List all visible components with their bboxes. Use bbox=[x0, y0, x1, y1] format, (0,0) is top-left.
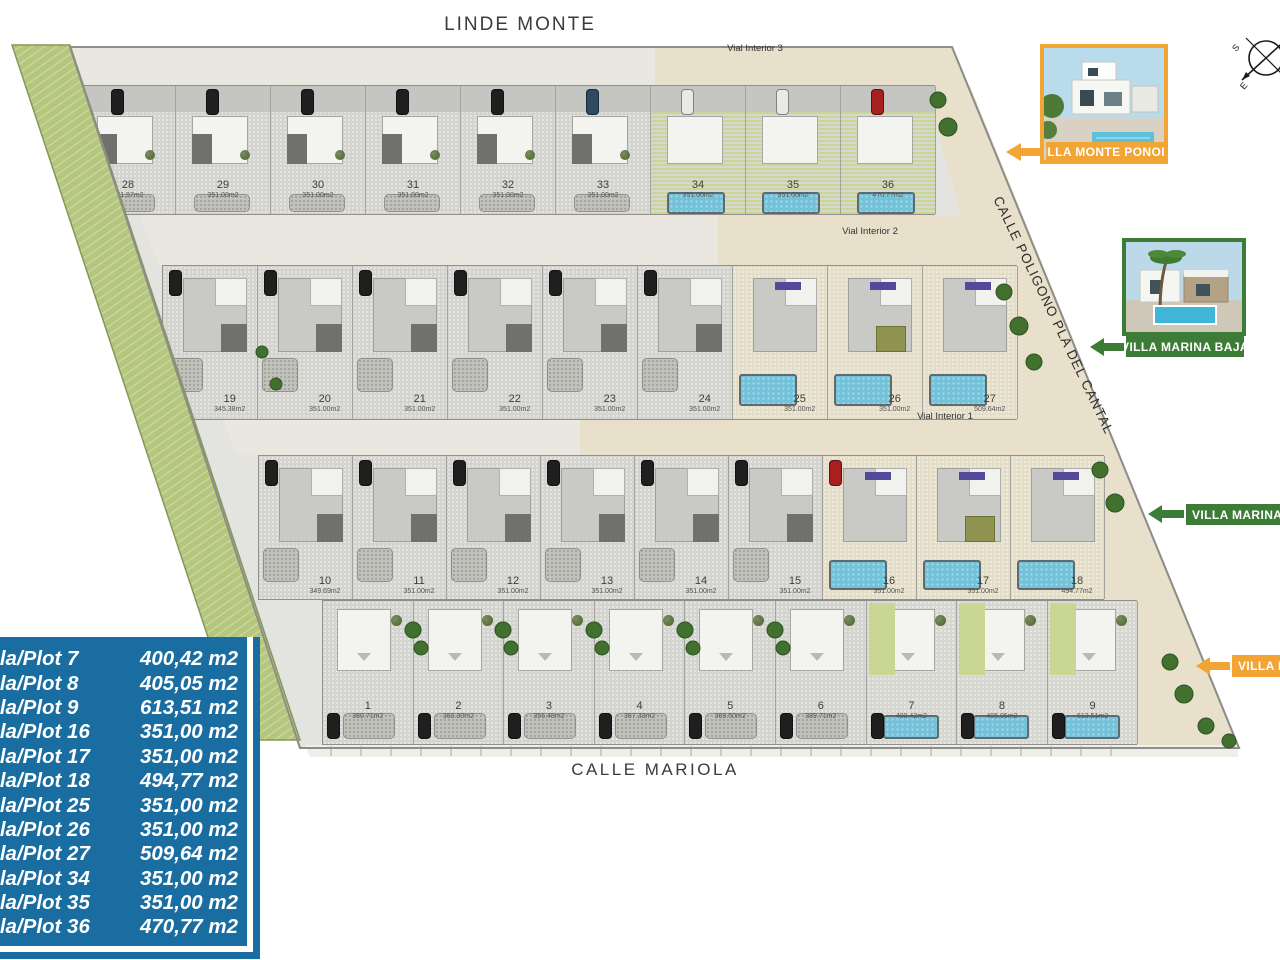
bush-icon bbox=[1116, 615, 1127, 626]
car-icon bbox=[206, 89, 219, 115]
plot-area: 494.77m2 bbox=[1050, 588, 1104, 595]
plot-area: 351.00m2 bbox=[651, 192, 745, 199]
plot-24: 24351.00m2 bbox=[638, 266, 733, 419]
street-label-calle-mariola: CALLE MARIOLA bbox=[555, 760, 755, 780]
pad-shape bbox=[452, 358, 488, 392]
drive-shape bbox=[461, 86, 556, 112]
plot-number-block: 15351.00m2 bbox=[768, 576, 822, 595]
car-icon bbox=[396, 89, 409, 115]
plot-number: 21 bbox=[392, 394, 447, 405]
pad-shape bbox=[262, 358, 298, 392]
plot-18: 18494.77m2 bbox=[1011, 456, 1105, 599]
roof-mark-icon bbox=[1082, 653, 1096, 661]
plot-number: 16 bbox=[862, 576, 916, 587]
legend-row: Parcela/Plot 8405,05 m2 bbox=[0, 671, 247, 695]
bush-icon bbox=[844, 615, 855, 626]
bush-icon bbox=[335, 150, 345, 160]
plot-area: 351.00m2 bbox=[392, 406, 447, 413]
roof-mark-icon bbox=[719, 653, 733, 661]
villa-monte-ponoig-side-label: VILLA MONTE PONOIG bbox=[1232, 655, 1280, 677]
house-shape bbox=[428, 609, 482, 671]
plot-area: 351.00m2 bbox=[674, 588, 728, 595]
plot-6: 6389.71m2 bbox=[776, 601, 867, 744]
plot-area-legend: Parcela/Plot 7400,42 m2Parcela/Plot 8405… bbox=[0, 637, 260, 959]
patch-shape bbox=[287, 134, 307, 164]
plot-area: 351.00m2 bbox=[297, 406, 352, 413]
plot-number: 27 bbox=[962, 394, 1017, 405]
plot-area: 351.00m2 bbox=[768, 588, 822, 595]
patch-shape bbox=[317, 514, 343, 542]
plot-area: 351.00m2 bbox=[556, 192, 650, 199]
plot-number: 23 bbox=[582, 394, 637, 405]
bush-icon bbox=[240, 150, 250, 160]
house-shape bbox=[609, 609, 663, 671]
plot-19: 19345.38m2 bbox=[163, 266, 258, 419]
pergola-icon bbox=[870, 282, 896, 290]
bush-icon bbox=[430, 150, 440, 160]
legend-row: Parcela/Plot 16351,00 m2 bbox=[0, 720, 247, 744]
roof-mark-icon bbox=[629, 653, 643, 661]
bush-icon bbox=[935, 615, 946, 626]
legend-plot-area: 470,77 m2 bbox=[140, 915, 247, 939]
legend-row: Parcela/Plot 17351,00 m2 bbox=[0, 745, 247, 769]
pergola-icon bbox=[865, 472, 891, 480]
plot-number: 3 bbox=[504, 701, 594, 712]
plot-number-block: 30351.00m2 bbox=[271, 180, 365, 199]
plot-number-block: 17351.00m2 bbox=[956, 576, 1010, 595]
plot-number: 24 bbox=[677, 394, 732, 405]
drive-shape bbox=[651, 86, 746, 112]
plot-11: 11351.00m2 bbox=[353, 456, 447, 599]
legend-row: Parcela/Plot 35351,00 m2 bbox=[0, 891, 247, 915]
villa-monte-ponoig-label: VILLA MONTE PONOIG bbox=[1046, 142, 1164, 162]
car-icon bbox=[549, 270, 562, 296]
compass-rose: S E bbox=[1232, 26, 1280, 102]
plot-number: 25 bbox=[772, 394, 827, 405]
bush-icon bbox=[620, 150, 630, 160]
drive-shape bbox=[746, 86, 841, 112]
car-icon bbox=[359, 460, 372, 486]
legend-plot-label: Parcela/Plot 36 bbox=[0, 915, 140, 939]
sub-shape bbox=[405, 278, 437, 306]
arrow-left-orange-icon bbox=[1196, 657, 1230, 675]
plot-number: 8 bbox=[957, 701, 1047, 712]
bush-icon bbox=[1025, 615, 1036, 626]
plot-area: 351.00m2 bbox=[392, 588, 446, 595]
drive-shape bbox=[81, 86, 176, 112]
plot-area: 360.71m2 bbox=[323, 713, 413, 720]
car-icon bbox=[829, 460, 842, 486]
car-icon bbox=[644, 270, 657, 296]
row-1-9: 1360.71m22360.30m23356.48m24367.33m25369… bbox=[322, 600, 1137, 745]
pergola-icon bbox=[965, 282, 991, 290]
sub-shape bbox=[215, 278, 247, 306]
legend-plot-area: 405,05 m2 bbox=[140, 672, 247, 696]
plot-number-block: 4367.33m2 bbox=[595, 701, 685, 720]
plot-number-block: 16351.00m2 bbox=[862, 576, 916, 595]
plot-area: 470.77m2 bbox=[841, 192, 935, 199]
plot-area: 351.00m2 bbox=[580, 588, 634, 595]
car-icon bbox=[265, 460, 278, 486]
plot-area: 371.97m2 bbox=[81, 192, 175, 199]
plot-21: 21351.00m2 bbox=[353, 266, 448, 419]
drive-shape bbox=[366, 86, 461, 112]
plot-number-block: 5369.50m2 bbox=[685, 701, 775, 720]
house-shape bbox=[790, 609, 844, 671]
sub-shape bbox=[310, 278, 342, 306]
pad-shape bbox=[642, 358, 678, 392]
arrow-left-green-icon bbox=[1090, 338, 1124, 356]
patch-shape bbox=[316, 324, 342, 352]
bush-icon bbox=[391, 615, 402, 626]
legend-plot-area: 613,51 m2 bbox=[140, 696, 247, 720]
plot-22: 22351.00m2 bbox=[448, 266, 543, 419]
row-10-18: 10349.69m211351.00m212351.00m213351.00m2… bbox=[258, 455, 1104, 600]
plot-35: 35351.00m2 bbox=[746, 86, 841, 214]
plot-number-block: 10349.69m2 bbox=[298, 576, 352, 595]
plot-area: 351.00m2 bbox=[176, 192, 270, 199]
bush-icon bbox=[525, 150, 535, 160]
plot-17: 17351.00m2 bbox=[917, 456, 1011, 599]
legend-plot-label: Parcela/Plot 17 bbox=[0, 745, 140, 769]
plot-number-block: 32351.00m2 bbox=[461, 180, 555, 199]
plot-number: 28 bbox=[81, 180, 175, 191]
patch-shape bbox=[505, 514, 531, 542]
plot-number-block: 23351.00m2 bbox=[582, 394, 637, 413]
roof-mark-icon bbox=[810, 653, 824, 661]
road-label-vial-interior-3: Vial Interior 3 bbox=[700, 43, 810, 54]
house-shape bbox=[762, 116, 818, 164]
legend-row: Parcela/Plot 27509,64 m2 bbox=[0, 842, 247, 866]
legend-plot-area: 509,64 m2 bbox=[140, 842, 247, 866]
plot-area: 389.71m2 bbox=[776, 713, 866, 720]
plot-number: 20 bbox=[297, 394, 352, 405]
lawn-shape bbox=[1050, 603, 1076, 675]
plot-number: 5 bbox=[685, 701, 775, 712]
plot-number: 9 bbox=[1048, 701, 1138, 712]
sub-shape bbox=[405, 468, 437, 496]
patch-shape bbox=[696, 324, 722, 352]
lawn-shape bbox=[869, 603, 895, 675]
plot-number: 33 bbox=[556, 180, 650, 191]
pergola-icon bbox=[959, 472, 985, 480]
plot-number: 34 bbox=[651, 180, 745, 191]
plot-27: 27509.64m2 bbox=[923, 266, 1018, 419]
plot-number: 1 bbox=[323, 701, 413, 712]
plot-number-block: 14351.00m2 bbox=[674, 576, 728, 595]
plot-area: 351.00m2 bbox=[461, 192, 555, 199]
legend-plot-label: Parcela/Plot 7 bbox=[0, 647, 140, 671]
pad-shape bbox=[639, 548, 675, 582]
compass-letter-s: S bbox=[1232, 42, 1242, 53]
plot-number-block: 31351.00m2 bbox=[366, 180, 460, 199]
plot-area: 400.42m2 bbox=[867, 713, 957, 720]
plot-area: 367.33m2 bbox=[595, 713, 685, 720]
plot-25: 25351.00m2 bbox=[733, 266, 828, 419]
car-icon bbox=[735, 460, 748, 486]
plot-area: 351.00m2 bbox=[271, 192, 365, 199]
plot-area: 349.69m2 bbox=[298, 588, 352, 595]
sub-shape bbox=[781, 468, 813, 496]
legend-plot-label: Parcela/Plot 27 bbox=[0, 842, 140, 866]
legend-plot-label: Parcela/Plot 26 bbox=[0, 818, 140, 842]
legend-rows: Parcela/Plot 7400,42 m2Parcela/Plot 8405… bbox=[0, 637, 247, 946]
villa-marina-baja-label: VILLA MARINA BAJA bbox=[1126, 336, 1244, 357]
roof-mark-icon bbox=[357, 653, 371, 661]
car-icon bbox=[169, 270, 182, 296]
plot-number: 35 bbox=[746, 180, 840, 191]
plot-area: 351.00m2 bbox=[772, 406, 827, 413]
compass-letter-e: E bbox=[1238, 80, 1249, 91]
plot-area: 351.00m2 bbox=[366, 192, 460, 199]
plot-area: 351.00m2 bbox=[746, 192, 840, 199]
legend-plot-label: Parcela/Plot 8 bbox=[0, 672, 140, 696]
plot-number-block: 21351.00m2 bbox=[392, 394, 447, 413]
plot-number: 26 bbox=[867, 394, 922, 405]
plot-number: 4 bbox=[595, 701, 685, 712]
plot-number: 6 bbox=[776, 701, 866, 712]
pad-shape bbox=[167, 358, 203, 392]
legend-plot-label: Parcela/Plot 35 bbox=[0, 891, 140, 915]
plot-12: 12351.00m2 bbox=[447, 456, 541, 599]
plot-number: 17 bbox=[956, 576, 1010, 587]
pad-shape bbox=[357, 358, 393, 392]
car-icon bbox=[301, 89, 314, 115]
plot-29: 29351.00m2 bbox=[176, 86, 271, 214]
legend-frame: Parcela/Plot 7400,42 m2Parcela/Plot 8405… bbox=[0, 637, 253, 952]
house-shape bbox=[667, 116, 723, 164]
roof-mark-icon bbox=[901, 653, 915, 661]
pad-shape bbox=[357, 548, 393, 582]
row-19-27: 19345.38m220351.00m221351.00m222351.00m2… bbox=[162, 265, 1017, 420]
patch-shape bbox=[693, 514, 719, 542]
arrow-left-green-icon bbox=[1148, 505, 1184, 523]
plot-number: 14 bbox=[674, 576, 728, 587]
patch-shape bbox=[192, 134, 212, 164]
bush-icon bbox=[482, 615, 493, 626]
legend-plot-label: Parcela/Plot 18 bbox=[0, 769, 140, 793]
row-28-36: 28371.97m229351.00m230351.00m231351.00m2… bbox=[80, 85, 935, 215]
patch-shape bbox=[221, 324, 247, 352]
patch-shape bbox=[382, 134, 402, 164]
car-icon bbox=[681, 89, 694, 115]
legend-plot-area: 400,42 m2 bbox=[140, 647, 247, 671]
car-icon bbox=[871, 89, 884, 115]
legend-plot-label: Parcela/Plot 9 bbox=[0, 696, 140, 720]
house-shape bbox=[518, 609, 572, 671]
plot-number-block: 13351.00m2 bbox=[580, 576, 634, 595]
sub-shape bbox=[595, 278, 627, 306]
patch-shape bbox=[601, 324, 627, 352]
legend-row: Parcela/Plot 26351,00 m2 bbox=[0, 818, 247, 842]
legend-plot-label: Parcela/Plot 16 bbox=[0, 720, 140, 744]
plot-area: 360.30m2 bbox=[414, 713, 504, 720]
house-shape bbox=[337, 609, 391, 671]
pad-shape bbox=[547, 358, 583, 392]
plot-number: 31 bbox=[366, 180, 460, 191]
plot-number: 22 bbox=[487, 394, 542, 405]
legend-row: Parcela/Plot 18494,77 m2 bbox=[0, 769, 247, 793]
plot-area: 356.48m2 bbox=[504, 713, 594, 720]
legend-plot-label: Parcela/Plot 34 bbox=[0, 867, 140, 891]
plot-area: 351.00m2 bbox=[677, 406, 732, 413]
pergola-icon bbox=[775, 282, 801, 290]
plot-number-block: 24351.00m2 bbox=[677, 394, 732, 413]
sub-shape bbox=[500, 278, 532, 306]
plot-number-block: 9613.51m2 bbox=[1048, 701, 1138, 720]
plot-20: 20351.00m2 bbox=[258, 266, 353, 419]
patch-shape bbox=[97, 134, 117, 164]
plot-number: 30 bbox=[271, 180, 365, 191]
street-label-linde-monte: LINDE MONTE bbox=[430, 14, 610, 36]
plot-number: 7 bbox=[867, 701, 957, 712]
plot-15: 15351.00m2 bbox=[729, 456, 823, 599]
plot-number-block: 6389.71m2 bbox=[776, 701, 866, 720]
drive-shape bbox=[176, 86, 271, 112]
plot-number: 18 bbox=[1050, 576, 1104, 587]
plot-number-block: 34351.00m2 bbox=[651, 180, 745, 199]
pad-shape bbox=[451, 548, 487, 582]
bush-icon bbox=[663, 615, 674, 626]
roof-mark-icon bbox=[538, 653, 552, 661]
pad-shape bbox=[733, 548, 769, 582]
site-plan-page: 28371.97m229351.00m230351.00m231351.00m2… bbox=[0, 0, 1280, 960]
plot-36: 36470.77m2 bbox=[841, 86, 936, 214]
drive-shape bbox=[271, 86, 366, 112]
legend-plot-area: 351,00 m2 bbox=[140, 818, 247, 842]
plot-area: 351.00m2 bbox=[582, 406, 637, 413]
legend-plot-area: 351,00 m2 bbox=[140, 867, 247, 891]
car-icon bbox=[547, 460, 560, 486]
plot-number-block: 20351.00m2 bbox=[297, 394, 352, 413]
plot-number-block: 7400.42m2 bbox=[867, 701, 957, 720]
patch-shape bbox=[477, 134, 497, 164]
plot-14: 14351.00m2 bbox=[635, 456, 729, 599]
patch-shape bbox=[411, 514, 437, 542]
roof-mark-icon bbox=[991, 653, 1005, 661]
plot-2: 2360.30m2 bbox=[414, 601, 505, 744]
plot-area: 351.00m2 bbox=[487, 406, 542, 413]
car-icon bbox=[454, 270, 467, 296]
legend-plot-area: 351,00 m2 bbox=[140, 794, 247, 818]
plot-16: 16351.00m2 bbox=[823, 456, 917, 599]
legend-row: Parcela/Plot 9613,51 m2 bbox=[0, 696, 247, 720]
legend-plot-area: 494,77 m2 bbox=[140, 769, 247, 793]
car-icon bbox=[641, 460, 654, 486]
car-icon bbox=[453, 460, 466, 486]
plot-area: 369.50m2 bbox=[685, 713, 775, 720]
plot-13: 13351.00m2 bbox=[541, 456, 635, 599]
plot-area: 351.00m2 bbox=[862, 588, 916, 595]
roof-mark-icon bbox=[448, 653, 462, 661]
legend-row: Parcela/Plot 36470,77 m2 bbox=[0, 915, 247, 939]
sub-shape bbox=[690, 278, 722, 306]
plot-number: 29 bbox=[176, 180, 270, 191]
patch-shape bbox=[411, 324, 437, 352]
plot-10: 10349.69m2 bbox=[259, 456, 353, 599]
legend-row: Parcela/Plot 34351,00 m2 bbox=[0, 867, 247, 891]
car-icon bbox=[776, 89, 789, 115]
legend-row: Parcela/Plot 25351,00 m2 bbox=[0, 793, 247, 817]
plot-number-block: 33351.00m2 bbox=[556, 180, 650, 199]
drive-shape bbox=[841, 86, 936, 112]
plot-26: 26351.00m2 bbox=[828, 266, 923, 419]
car-icon bbox=[264, 270, 277, 296]
plot-number-block: 28371.97m2 bbox=[81, 180, 175, 199]
road-label-vial-interior-2: Vial Interior 2 bbox=[815, 226, 925, 237]
plot-9: 9613.51m2 bbox=[1048, 601, 1139, 744]
plot-number: 2 bbox=[414, 701, 504, 712]
plot-8: 8405.05m2 bbox=[957, 601, 1048, 744]
plot-number-block: 35351.00m2 bbox=[746, 180, 840, 199]
pad-shape bbox=[263, 548, 299, 582]
plot-33: 33351.00m2 bbox=[556, 86, 651, 214]
bush-icon bbox=[753, 615, 764, 626]
patio-icon bbox=[965, 516, 995, 542]
plot-number-block: 25351.00m2 bbox=[772, 394, 827, 413]
drive-shape bbox=[556, 86, 651, 112]
patch-shape bbox=[572, 134, 592, 164]
house-shape bbox=[699, 609, 753, 671]
plot-number: 15 bbox=[768, 576, 822, 587]
legend-plot-area: 351,00 m2 bbox=[140, 720, 247, 744]
plot-number: 10 bbox=[298, 576, 352, 587]
sub-shape bbox=[593, 468, 625, 496]
car-icon bbox=[586, 89, 599, 115]
sub-shape bbox=[499, 468, 531, 496]
legend-row: Parcela/Plot 7400,42 m2 bbox=[0, 647, 247, 671]
house-shape bbox=[857, 116, 913, 164]
car-icon bbox=[359, 270, 372, 296]
patio-icon bbox=[876, 326, 906, 352]
plot-area: 351.00m2 bbox=[956, 588, 1010, 595]
bush-icon bbox=[145, 150, 155, 160]
plot-number: 12 bbox=[486, 576, 540, 587]
villa-marina-baja-render bbox=[1126, 242, 1242, 332]
road-label-vial-interior-1: Vial Interior 1 bbox=[890, 411, 1000, 422]
pad-shape bbox=[545, 548, 581, 582]
plot-4: 4367.33m2 bbox=[595, 601, 686, 744]
villa-marina-baja-side-label: VILLA MARINA BAJA bbox=[1186, 504, 1280, 525]
plot-number-block: 22351.00m2 bbox=[487, 394, 542, 413]
plot-area: 405.05m2 bbox=[957, 713, 1047, 720]
patch-shape bbox=[506, 324, 532, 352]
car-icon bbox=[111, 89, 124, 115]
plot-area: 613.51m2 bbox=[1048, 713, 1138, 720]
legend-plot-area: 351,00 m2 bbox=[140, 745, 247, 769]
plot-31: 31351.00m2 bbox=[366, 86, 461, 214]
plot-30: 30351.00m2 bbox=[271, 86, 366, 214]
sub-shape bbox=[687, 468, 719, 496]
legend-plot-area: 351,00 m2 bbox=[140, 891, 247, 915]
plot-34: 34351.00m2 bbox=[651, 86, 746, 214]
sub-shape bbox=[311, 468, 343, 496]
plot-number: 11 bbox=[392, 576, 446, 587]
legend-plot-label: Parcela/Plot 25 bbox=[0, 794, 140, 818]
plot-area: 345.38m2 bbox=[202, 406, 257, 413]
plot-number-block: 8405.05m2 bbox=[957, 701, 1047, 720]
plot-number-block: 36470.77m2 bbox=[841, 180, 935, 199]
plot-number-block: 3356.48m2 bbox=[504, 701, 594, 720]
plot-number-block: 19345.38m2 bbox=[202, 394, 257, 413]
plot-number: 36 bbox=[841, 180, 935, 191]
plot-1: 1360.71m2 bbox=[323, 601, 414, 744]
lawn-shape bbox=[959, 603, 985, 675]
plot-32: 32351.00m2 bbox=[461, 86, 556, 214]
plot-28: 28371.97m2 bbox=[81, 86, 176, 214]
plot-number-block: 18494.77m2 bbox=[1050, 576, 1104, 595]
car-icon bbox=[491, 89, 504, 115]
